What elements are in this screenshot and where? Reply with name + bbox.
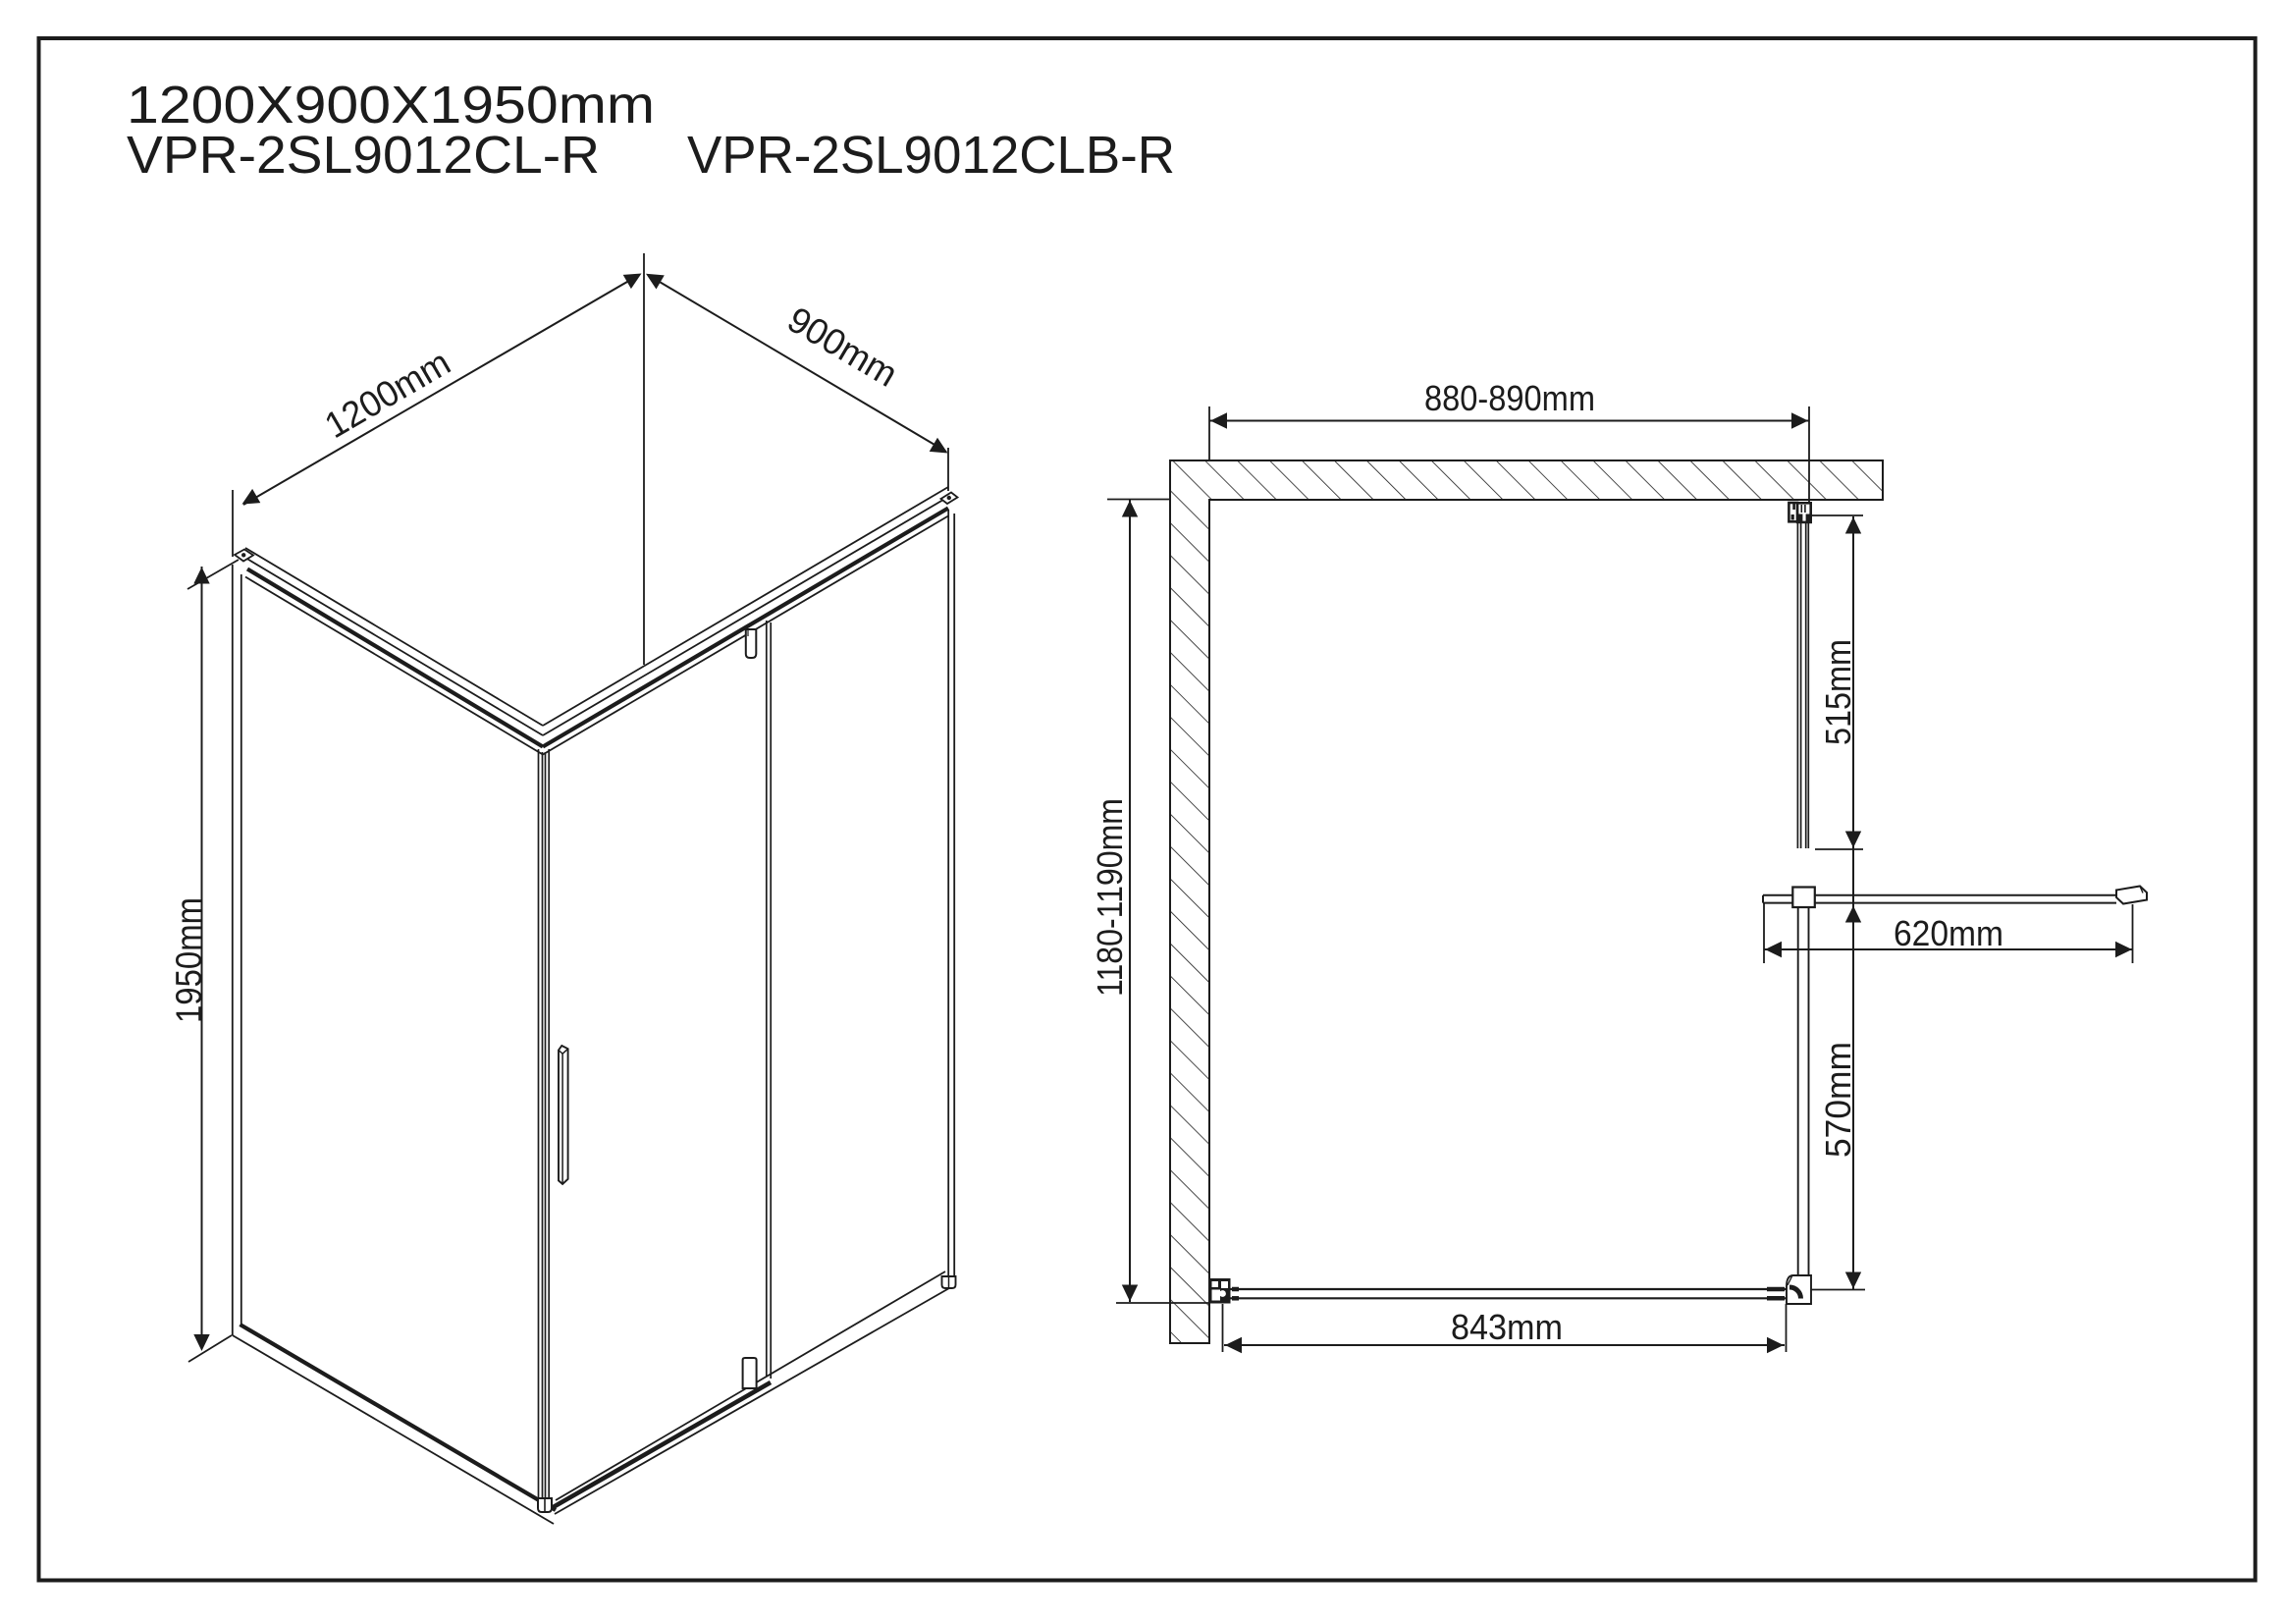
svg-text:1950mm: 1950mm xyxy=(169,897,209,1023)
svg-text:843mm: 843mm xyxy=(1451,1307,1563,1347)
svg-text:VPR-2SL9012CL-R: VPR-2SL9012CL-R xyxy=(127,126,600,185)
svg-text:880-890mm: 880-890mm xyxy=(1424,378,1595,418)
svg-text:1180-1190mm: 1180-1190mm xyxy=(1090,798,1130,997)
svg-text:VPR-2SL9012CLB-R: VPR-2SL9012CLB-R xyxy=(687,126,1175,185)
svg-text:620mm: 620mm xyxy=(1894,913,2003,953)
svg-text:570mm: 570mm xyxy=(1818,1042,1858,1158)
svg-text:515mm: 515mm xyxy=(1818,639,1858,745)
